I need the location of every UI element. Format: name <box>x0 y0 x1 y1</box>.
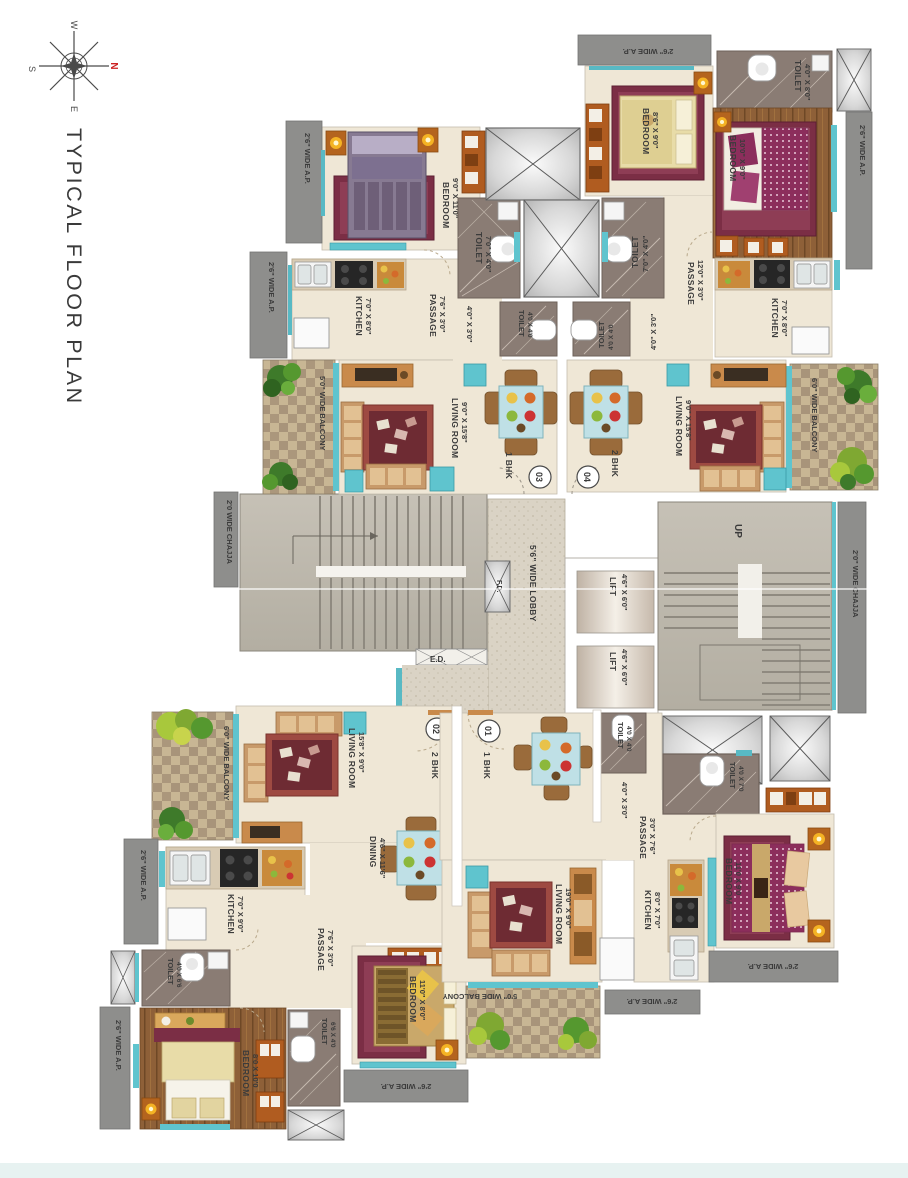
svg-text:5'0" WIDE BALCONY: 5'0" WIDE BALCONY <box>318 376 327 451</box>
svg-text:TOILET: TOILET <box>320 1018 329 1045</box>
svg-text:TOILET: TOILET <box>616 722 625 749</box>
svg-text:03: 03 <box>534 472 544 482</box>
svg-text:7'0" X 8'0": 7'0" X 8'0" <box>364 298 373 335</box>
svg-text:E.D.: E.D. <box>430 655 446 664</box>
svg-text:9'0" X 15'8": 9'0" X 15'8" <box>684 400 693 441</box>
svg-text:9'0" X 15'8": 9'0" X 15'8" <box>460 402 469 443</box>
svg-text:8'0 X 10'0: 8'0 X 10'0 <box>251 1054 260 1088</box>
svg-text:TOILET: TOILET <box>793 60 803 92</box>
svg-text:2'0 WIDE CHAJJA: 2'0 WIDE CHAJJA <box>225 500 234 564</box>
svg-text:TYPICAL FLOOR PLAN: TYPICAL FLOOR PLAN <box>62 128 86 406</box>
svg-text:PASSAGE: PASSAGE <box>316 928 326 971</box>
svg-text:2 BHK: 2 BHK <box>610 450 620 478</box>
svg-text:BEDROOM: BEDROOM <box>441 182 451 229</box>
svg-text:BEDROOM: BEDROOM <box>641 108 651 155</box>
svg-text:2'6" WIDE A.P.: 2'6" WIDE A.P. <box>381 1082 432 1091</box>
svg-text:LIFT: LIFT <box>608 577 618 597</box>
svg-text:4'0 X 7'0: 4'0 X 7'0 <box>737 766 744 792</box>
svg-text:LIVING ROOM: LIVING ROOM <box>347 728 357 788</box>
svg-text:11'0" X 8'0": 11'0" X 8'0" <box>418 980 427 1021</box>
svg-text:DINING: DINING <box>368 836 378 868</box>
svg-text:PASSAGE: PASSAGE <box>428 294 438 337</box>
svg-text:2 BHK: 2 BHK <box>430 752 440 780</box>
svg-text:TOILET: TOILET <box>517 310 526 337</box>
svg-text:PASSAGE: PASSAGE <box>638 816 648 859</box>
svg-text:12'0" X 3'0": 12'0" X 3'0" <box>696 260 705 301</box>
svg-text:2'0" WIDE CHAJJA: 2'0" WIDE CHAJJA <box>851 550 860 618</box>
svg-text:4'6" X 6'0": 4'6" X 6'0" <box>620 574 629 611</box>
svg-text:BEDROOM: BEDROOM <box>241 1050 251 1097</box>
svg-text:7'0" X 9'0": 7'0" X 9'0" <box>236 896 245 933</box>
svg-text:2'6" WIDE A.P.: 2'6" WIDE A.P. <box>627 997 678 1006</box>
svg-text:KITCHEN: KITCHEN <box>770 298 780 338</box>
svg-text:BEDROOM: BEDROOM <box>408 976 418 1023</box>
svg-text:2'6" WIDE A.P.: 2'6" WIDE A.P. <box>623 47 674 56</box>
svg-text:1 BHK: 1 BHK <box>482 752 492 780</box>
svg-text:BEDROOM: BEDROOM <box>728 135 738 182</box>
svg-text:S: S <box>27 66 37 72</box>
svg-text:02: 02 <box>431 724 441 734</box>
svg-text:4'0 X 4'0: 4'0 X 4'0 <box>608 324 615 350</box>
svg-text:UP: UP <box>732 524 743 538</box>
svg-text:2'6" WIDE A.P.: 2'6" WIDE A.P. <box>858 125 867 176</box>
svg-text:7'6" X 3'0": 7'6" X 3'0" <box>326 930 335 967</box>
svg-text:2'6" WIDE A.P.: 2'6" WIDE A.P. <box>267 262 276 313</box>
svg-text:3'0" X 7'6": 3'0" X 7'6" <box>648 818 657 855</box>
svg-text:E: E <box>69 106 79 112</box>
svg-text:TOILET: TOILET <box>630 236 640 268</box>
svg-text:8'0" X 7'0": 8'0" X 7'0" <box>653 892 662 929</box>
svg-text:W: W <box>69 21 79 30</box>
svg-text:KITCHEN: KITCHEN <box>226 894 236 934</box>
svg-text:19'0" X 9'0": 19'0" X 9'0" <box>564 888 573 929</box>
svg-text:01: 01 <box>483 726 493 736</box>
svg-text:KITCHEN: KITCHEN <box>354 296 364 336</box>
svg-text:TOILET: TOILET <box>728 762 737 789</box>
svg-text:TOILET: TOILET <box>166 958 175 985</box>
svg-text:2'6" WIDE A.P.: 2'6" WIDE A.P. <box>139 850 148 901</box>
svg-text:6'0" WIDE BALCONY: 6'0" WIDE BALCONY <box>810 378 819 453</box>
svg-text:PASSAGE: PASSAGE <box>686 262 696 305</box>
svg-text:7'0" X 8'0": 7'0" X 8'0" <box>780 300 789 337</box>
svg-text:4'0" X 8'0": 4'0" X 8'0" <box>803 64 812 101</box>
svg-text:11'0 X 9'0: 11'0 X 9'0 <box>734 862 743 895</box>
svg-text:4'0" X 3'0": 4'0" X 3'0" <box>649 313 658 350</box>
svg-text:6'0" WIDE BALCONY: 6'0" WIDE BALCONY <box>222 726 231 801</box>
svg-text:LIVING ROOM: LIVING ROOM <box>450 398 460 458</box>
svg-text:F.D.: F.D. <box>495 580 502 593</box>
svg-text:8'6" X 9'0": 8'6" X 9'0" <box>651 112 660 149</box>
svg-text:2'6" WIDE A.P.: 2'6" WIDE A.P. <box>748 962 799 971</box>
svg-text:2'6" WIDE A.P.: 2'6" WIDE A.P. <box>114 1020 123 1071</box>
svg-text:LIVING ROOM: LIVING ROOM <box>554 884 564 944</box>
svg-text:5'0" WIDE BALCONY: 5'0" WIDE BALCONY <box>443 992 518 1001</box>
svg-text:4'0 X 4'0: 4'0 X 4'0 <box>625 726 632 752</box>
svg-text:LIFT: LIFT <box>608 652 618 672</box>
svg-text:LIVING ROOM: LIVING ROOM <box>674 396 684 456</box>
svg-text:4'6" X 6'0": 4'6" X 6'0" <box>620 649 629 686</box>
svg-text:7'0" X 4'0": 7'0" X 4'0" <box>641 235 650 272</box>
svg-text:7'6" X 3'0": 7'6" X 3'0" <box>438 296 447 333</box>
svg-text:04: 04 <box>582 472 592 482</box>
svg-text:15'8" X 9'0": 15'8" X 9'0" <box>357 732 366 773</box>
svg-text:10'0" X 9'0": 10'0" X 9'0" <box>738 139 747 180</box>
svg-text:5'6" WIDE LOBBY: 5'6" WIDE LOBBY <box>528 545 538 622</box>
svg-text:1 BHK: 1 BHK <box>504 452 514 480</box>
svg-text:2'6" WIDE A.P.: 2'6" WIDE A.P. <box>303 133 312 184</box>
svg-text:4'0 X 6'6: 4'0 X 6'6 <box>175 962 182 988</box>
svg-text:TOILET: TOILET <box>597 321 606 348</box>
svg-text:4'0 X 4'0: 4'0 X 4'0 <box>526 312 533 338</box>
svg-text:N: N <box>108 62 119 69</box>
svg-text:4'0" X 3'0": 4'0" X 3'0" <box>465 306 474 343</box>
svg-text:4'6" X 11'6": 4'6" X 11'6" <box>378 838 387 879</box>
svg-text:7'0" X 4'0": 7'0" X 4'0" <box>484 236 493 273</box>
svg-text:BEDROOM: BEDROOM <box>724 858 734 905</box>
svg-text:6'6 X 4'0: 6'6 X 4'0 <box>329 1022 336 1048</box>
svg-text:4'0" X 3'0": 4'0" X 3'0" <box>620 782 629 819</box>
svg-text:TOILET: TOILET <box>474 232 484 264</box>
svg-text:KITCHEN: KITCHEN <box>643 890 653 930</box>
